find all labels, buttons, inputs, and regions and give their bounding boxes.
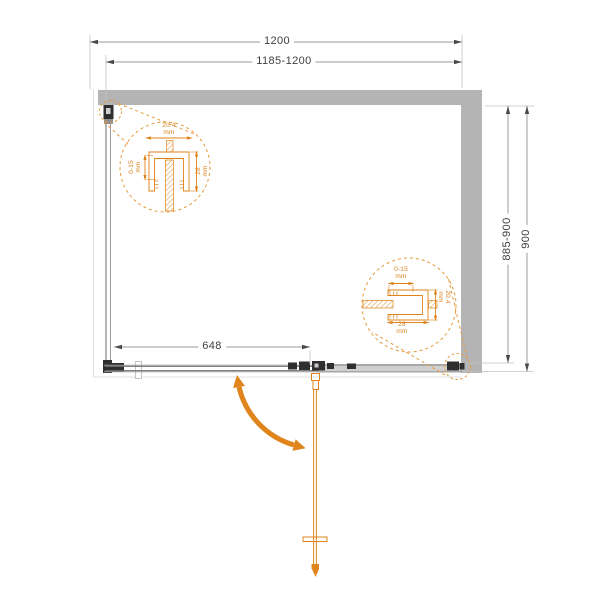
dim-label-depth-total: 900 [521, 225, 533, 253]
door-handle [303, 537, 327, 542]
right-wall [461, 105, 482, 373]
floor-bracket [136, 362, 142, 379]
plan-drawing-canvas [0, 0, 600, 600]
dim-label-depth-range: 885-900 [502, 213, 514, 264]
detail1-profile-depth-label: 28 mm [196, 165, 210, 176]
door-swing-arrow [233, 375, 306, 451]
detail2-profile-width-label: 20.4 mm [436, 290, 450, 303]
detail1-profile-width-label: 20.4 mm [162, 123, 175, 137]
shower-enclosure-plan-drawing: 1200 1185-1200 900 885-900 648 20.4 mm 0… [0, 0, 600, 600]
dim-label-width-total: 1200 [260, 36, 294, 48]
dim-label-panel-width: 648 [198, 341, 226, 353]
dim-label-width-range: 1185-1200 [252, 56, 315, 68]
detail2-adjustment-label: 0-15 mm [394, 267, 408, 281]
detail2-profile-depth-label: 28 mm [396, 322, 407, 336]
detail1-adjustment-label: 0-15 mm [129, 160, 143, 174]
detail-callout-top-left [100, 101, 211, 213]
bottom-rail [104, 361, 465, 372]
top-wall [98, 90, 482, 105]
detail-callout-bottom-right [362, 258, 471, 380]
door-panel [303, 374, 327, 578]
left-side-panel [103, 105, 142, 379]
